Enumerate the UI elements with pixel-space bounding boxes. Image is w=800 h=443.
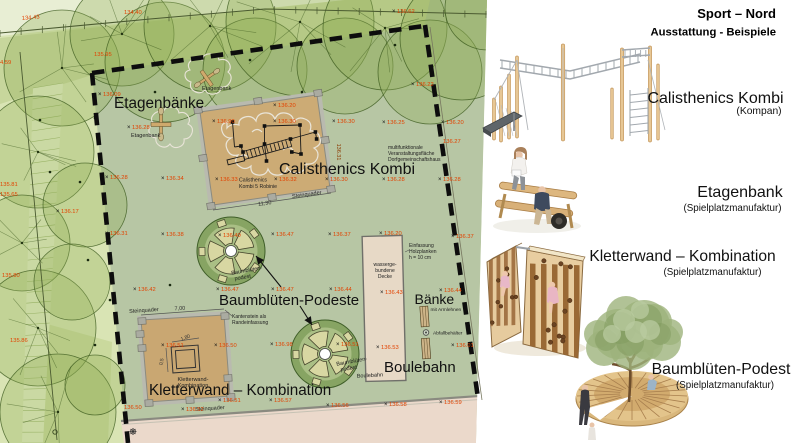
svg-text:×: × bbox=[438, 177, 442, 183]
svg-text:Decke: Decke bbox=[378, 274, 392, 280]
svg-text:136.37: 136.37 bbox=[333, 232, 351, 238]
svg-text:4.59: 4.59 bbox=[0, 60, 11, 66]
svg-text:135.95: 135.95 bbox=[94, 52, 112, 58]
svg-text:Boulebahn: Boulebahn bbox=[384, 359, 456, 376]
svg-text:×: × bbox=[274, 177, 278, 183]
svg-text:×: × bbox=[439, 400, 443, 406]
svg-text:×: × bbox=[326, 403, 330, 409]
svg-text:(Spielplatzmanufaktur): (Spielplatzmanufaktur) bbox=[676, 380, 774, 391]
svg-text:Etagenbank: Etagenbank bbox=[697, 184, 783, 201]
svg-text:×: × bbox=[127, 125, 131, 131]
svg-text:136.33: 136.33 bbox=[220, 177, 238, 183]
svg-text:136.56: 136.56 bbox=[331, 403, 349, 409]
svg-text:136.30: 136.30 bbox=[278, 119, 296, 125]
svg-text:136.31: 136.31 bbox=[335, 144, 341, 161]
svg-text:×: × bbox=[379, 231, 383, 237]
svg-text:Kombi 5 Robinie: Kombi 5 Robinie bbox=[239, 184, 277, 190]
svg-text:×: × bbox=[271, 232, 275, 238]
svg-text:(Spielplatzmanufaktur): (Spielplatzmanufaktur) bbox=[683, 203, 781, 214]
svg-text:136.31: 136.31 bbox=[110, 231, 128, 237]
svg-text:×: × bbox=[451, 234, 455, 240]
svg-text:136.50: 136.50 bbox=[124, 405, 142, 411]
svg-text:×: × bbox=[214, 343, 218, 349]
svg-text:×: × bbox=[332, 119, 336, 125]
svg-text:135.65: 135.65 bbox=[0, 192, 18, 198]
svg-text:×: × bbox=[161, 176, 165, 182]
svg-text:×: × bbox=[380, 290, 384, 296]
svg-text:×: × bbox=[273, 119, 277, 125]
svg-text:×: × bbox=[98, 92, 102, 98]
svg-text:136.90: 136.90 bbox=[217, 119, 235, 125]
svg-text:×: × bbox=[215, 177, 219, 183]
svg-text:×: × bbox=[105, 231, 109, 237]
svg-text:136.37: 136.37 bbox=[456, 234, 474, 240]
svg-text:136.58: 136.58 bbox=[389, 402, 407, 408]
svg-text:Randeinfassung: Randeinfassung bbox=[232, 320, 268, 326]
svg-text:×: × bbox=[218, 233, 222, 239]
svg-text:135.81: 135.81 bbox=[0, 182, 18, 188]
svg-text:mit Armlehnen: mit Armlehnen bbox=[431, 307, 462, 313]
svg-text:Calisthenics Kombi: Calisthenics Kombi bbox=[279, 161, 415, 178]
svg-text:7,00: 7,00 bbox=[174, 306, 185, 313]
svg-text:136.01: 136.01 bbox=[456, 343, 474, 349]
svg-text:136.28: 136.28 bbox=[110, 175, 128, 181]
svg-text:×: × bbox=[161, 232, 165, 238]
svg-text:Ausstattung - Beispiele: Ausstattung - Beispiele bbox=[650, 27, 776, 39]
svg-text:×: × bbox=[56, 209, 60, 215]
svg-text:×: × bbox=[411, 82, 415, 88]
svg-text:136.38: 136.38 bbox=[166, 232, 184, 238]
svg-text:136.34: 136.34 bbox=[166, 176, 185, 182]
svg-text:×: × bbox=[181, 407, 185, 413]
svg-text:Bänke: Bänke bbox=[415, 291, 455, 307]
svg-text:136.52: 136.52 bbox=[186, 407, 204, 413]
svg-text:136.43: 136.43 bbox=[385, 290, 403, 296]
svg-text:×: × bbox=[105, 175, 109, 181]
svg-text:136.51: 136.51 bbox=[341, 342, 359, 348]
svg-text:×: × bbox=[133, 287, 137, 293]
svg-text:Abfallbehälter: Abfallbehälter bbox=[433, 331, 463, 337]
svg-text:136.98: 136.98 bbox=[275, 342, 293, 348]
svg-text:Etagenbank: Etagenbank bbox=[202, 86, 232, 92]
svg-text:×: × bbox=[328, 232, 332, 238]
svg-text:136.22: 136.22 bbox=[416, 82, 434, 88]
svg-text:136.28: 136.28 bbox=[132, 125, 150, 131]
svg-text:136.51: 136.51 bbox=[166, 343, 184, 349]
svg-text:h = 10 cm: h = 10 cm bbox=[409, 255, 431, 261]
svg-text:136.42: 136.42 bbox=[138, 287, 156, 293]
svg-text:136.53: 136.53 bbox=[381, 345, 399, 351]
svg-text:136.28: 136.28 bbox=[443, 177, 461, 183]
svg-text:(Kompan): (Kompan) bbox=[736, 106, 781, 117]
svg-text:Calisthenics Kombi: Calisthenics Kombi bbox=[647, 90, 783, 107]
svg-text:×: × bbox=[451, 343, 455, 349]
svg-text:(Spielplatzmanufaktur): (Spielplatzmanufaktur) bbox=[663, 267, 761, 278]
svg-text:Etagenbänke: Etagenbänke bbox=[114, 95, 204, 112]
svg-text:136.20: 136.20 bbox=[446, 120, 464, 126]
svg-text:136.40: 136.40 bbox=[223, 233, 241, 239]
svg-text:136.20: 136.20 bbox=[384, 231, 402, 237]
svg-text:135.80: 135.80 bbox=[2, 273, 20, 279]
svg-text:×: × bbox=[336, 342, 340, 348]
svg-text:136.59: 136.59 bbox=[444, 400, 462, 406]
svg-text:136.25: 136.25 bbox=[387, 120, 405, 126]
svg-text:Kletterwand – Kombination: Kletterwand – Kombination bbox=[589, 248, 775, 265]
svg-text:×: × bbox=[376, 345, 380, 351]
svg-text:Etagenbank: Etagenbank bbox=[131, 133, 161, 139]
svg-text:0,5: 0,5 bbox=[158, 358, 165, 366]
svg-text:Kletterwand – Kombination: Kletterwand – Kombination bbox=[149, 382, 331, 399]
svg-text:135.86: 135.86 bbox=[10, 338, 28, 344]
svg-text:×: × bbox=[392, 9, 396, 15]
svg-text:Sport – Nord: Sport – Nord bbox=[697, 6, 776, 21]
svg-text:×: × bbox=[441, 120, 445, 126]
svg-text:136.47: 136.47 bbox=[276, 232, 294, 238]
svg-text:Calisthenics: Calisthenics bbox=[239, 178, 267, 184]
svg-text:×: × bbox=[270, 342, 274, 348]
svg-text:Baumblüten-Podeste: Baumblüten-Podeste bbox=[219, 292, 359, 309]
svg-text:136.30: 136.30 bbox=[337, 119, 355, 125]
svg-text:136.27: 136.27 bbox=[443, 139, 461, 145]
svg-text:×: × bbox=[273, 103, 277, 109]
svg-text:Baumblüten-Podest: Baumblüten-Podest bbox=[652, 361, 791, 378]
svg-text:136.17: 136.17 bbox=[61, 209, 79, 215]
svg-text:134.40: 134.40 bbox=[124, 10, 142, 16]
svg-text:×: × bbox=[161, 343, 165, 349]
svg-text:×: × bbox=[384, 402, 388, 408]
svg-text:×: × bbox=[382, 120, 386, 126]
svg-text:×: × bbox=[212, 119, 216, 125]
svg-text:136.50: 136.50 bbox=[219, 343, 237, 349]
svg-text:136.20: 136.20 bbox=[278, 103, 296, 109]
svg-text:136.62: 136.62 bbox=[397, 9, 415, 15]
